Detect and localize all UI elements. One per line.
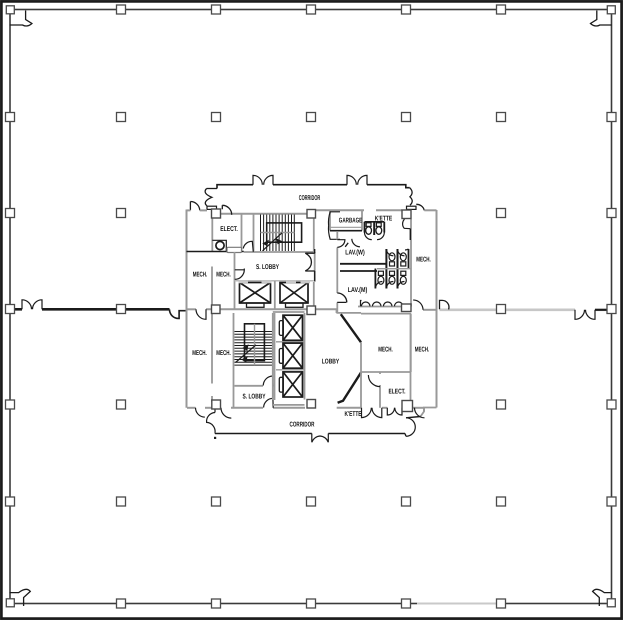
svg-text:K'ETTE: K'ETTE [345, 411, 362, 418]
svg-text:ELECT.: ELECT. [389, 388, 406, 395]
svg-text:LAV.(W): LAV.(W) [345, 248, 365, 256]
svg-text:S. LOBBY: S. LOBBY [243, 393, 266, 400]
svg-text:MECH.: MECH. [193, 271, 208, 278]
svg-text:ELECT.: ELECT. [220, 226, 238, 233]
svg-text:CORRIDOR: CORRIDOR [299, 195, 321, 202]
svg-text:LAV.(M): LAV.(M) [348, 286, 368, 294]
svg-text:MECH.: MECH. [192, 350, 207, 357]
svg-text:MECH.: MECH. [415, 346, 430, 353]
svg-text:MECH.: MECH. [416, 256, 431, 263]
svg-text:LOBBY: LOBBY [322, 358, 340, 365]
svg-text:MECH.: MECH. [216, 271, 231, 278]
svg-text:S. LOBBY: S. LOBBY [256, 264, 279, 271]
svg-text:MECH.: MECH. [378, 346, 393, 353]
svg-text:GARBAGE: GARBAGE [339, 217, 363, 224]
svg-text:CORRIDOR: CORRIDOR [290, 421, 315, 428]
svg-text:MECH.: MECH. [216, 350, 231, 357]
svg-text:K'ETTE: K'ETTE [375, 215, 393, 222]
